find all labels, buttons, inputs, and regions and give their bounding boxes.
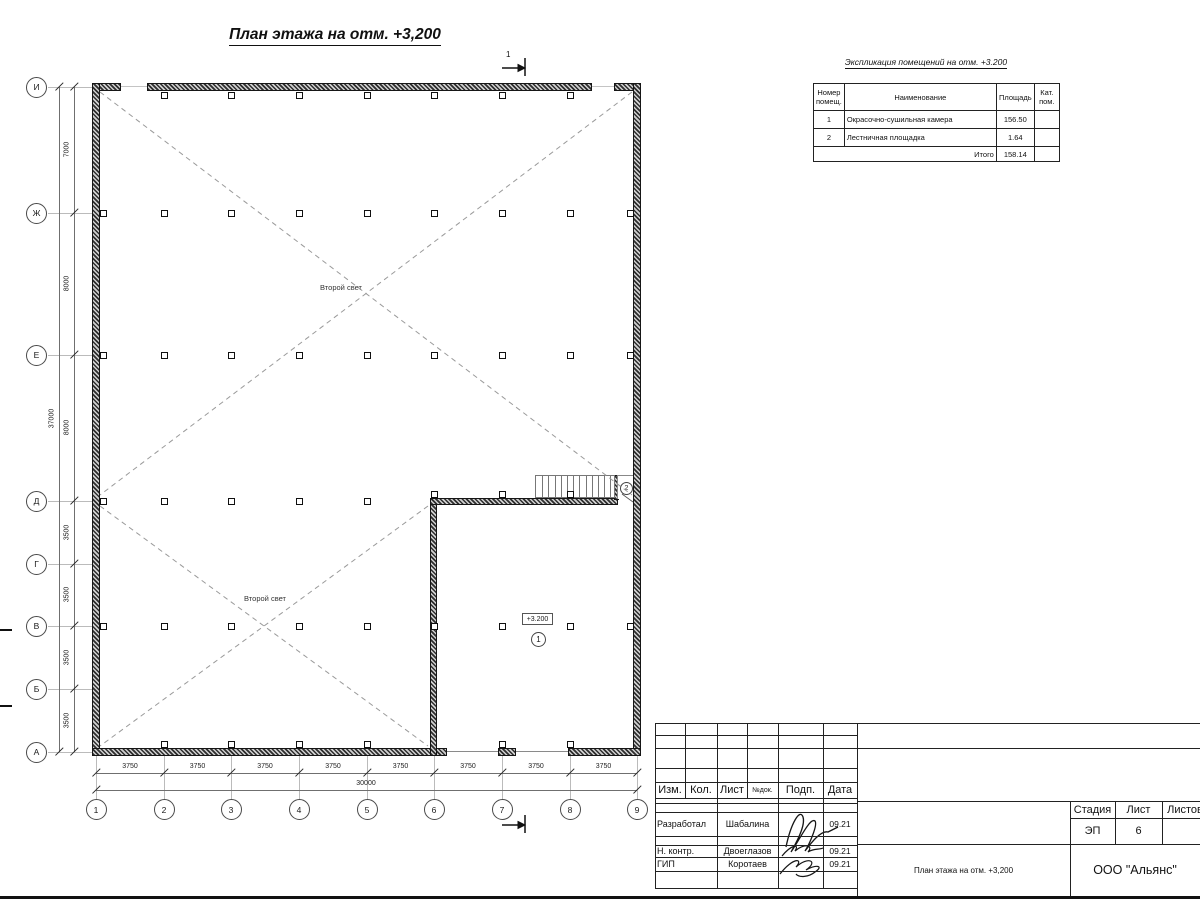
column-marker <box>228 498 235 505</box>
column-marker <box>567 352 574 359</box>
titleblock-line <box>655 836 857 837</box>
tb-col-data: Дата <box>823 782 857 798</box>
tb-stage-value: ЭП <box>1070 818 1115 844</box>
axis-circle: 9 <box>627 799 648 820</box>
axis-label: 3 <box>229 805 234 815</box>
room-number-cell: 2 <box>814 129 845 147</box>
drawing-sheet: План этажа на отм. +3,200 +3.200 1 2 Вто… <box>0 0 1200 900</box>
column-marker <box>228 352 235 359</box>
titleblock-line <box>655 735 857 736</box>
axis-extension-line <box>434 756 435 799</box>
axis-extension-line <box>637 756 638 799</box>
titleblock-line <box>655 888 857 889</box>
dim-label: 7000 <box>64 130 71 170</box>
axis-label: 2 <box>162 805 167 815</box>
tb-stage-label: Стадия <box>1070 801 1115 818</box>
tb-col-ndok: №док. <box>747 782 778 798</box>
tb-col-podp: Подп. <box>778 782 823 798</box>
room-cat-cell <box>1034 111 1059 129</box>
axis-extension-line <box>96 756 97 799</box>
axis-extension-line <box>231 756 232 799</box>
axis-circle: 3 <box>221 799 242 820</box>
column-marker <box>364 352 371 359</box>
titleblock-line <box>857 844 1200 845</box>
column-marker <box>431 491 438 498</box>
titleblock-line <box>655 768 857 769</box>
room-cat-cell <box>1034 129 1059 147</box>
column-marker <box>431 210 438 217</box>
dim-label: 3750 <box>516 763 556 770</box>
axis-extension-line <box>48 752 92 753</box>
dim-label: 3750 <box>584 763 624 770</box>
tb-name: Шабалина <box>717 812 778 836</box>
column-marker <box>296 210 303 217</box>
room-area-cell: 1.64 <box>996 129 1034 147</box>
column-marker <box>364 741 371 748</box>
legend-header-cell: Номер помещ. <box>814 84 845 111</box>
column-marker <box>364 623 371 630</box>
section-arrow-icon <box>502 58 525 76</box>
column-marker <box>228 92 235 99</box>
room-area-cell: 156.50 <box>996 111 1034 129</box>
axis-label: Ж <box>33 208 41 218</box>
column-marker <box>364 92 371 99</box>
dim-label: 3500 <box>64 512 71 552</box>
axis-circle: 8 <box>560 799 581 820</box>
column-marker <box>364 498 371 505</box>
legend-row: 1 Окрасочно-сушильная камера 156.50 <box>814 111 1060 129</box>
dim-label: 3500 <box>64 575 71 615</box>
tb-col-list: Лист <box>717 782 747 798</box>
room2-leader-line <box>622 494 633 502</box>
dim-line-bottom-total <box>96 790 637 791</box>
dim-line-left-total <box>59 87 60 752</box>
column-marker <box>499 741 506 748</box>
signature <box>782 846 823 856</box>
tb-role: Н. контр. <box>657 845 717 857</box>
axis-circle: Ж <box>26 203 47 224</box>
axis-label: 6 <box>432 805 437 815</box>
dim-label-total: 37000 <box>49 399 56 439</box>
titleblock-line <box>655 845 857 846</box>
signature <box>780 861 819 877</box>
tb-sheets-label: Листов <box>1162 801 1200 818</box>
column-marker <box>627 210 634 217</box>
axis-circle: В <box>26 616 47 637</box>
legend-header-cell: Кат. пом. <box>1034 84 1059 111</box>
column-marker <box>296 352 303 359</box>
column-marker <box>228 623 235 630</box>
axis-extension-line <box>164 756 165 799</box>
titleblock-line <box>655 871 857 872</box>
axis-extension-line <box>502 756 503 799</box>
axis-label: Е <box>34 350 40 360</box>
column-marker <box>100 498 107 505</box>
titleblock-line <box>655 748 857 749</box>
dim-label-total: 30000 <box>346 780 386 787</box>
axis-extension-line <box>48 355 92 356</box>
axis-circle: И <box>26 77 47 98</box>
tb-date: 09.21 <box>823 812 857 836</box>
column-marker <box>567 92 574 99</box>
legend-table: Номер помещ. Наименование Площадь Кат. п… <box>813 83 1060 162</box>
column-marker <box>567 491 574 498</box>
column-marker <box>431 352 438 359</box>
axis-circle: Б <box>26 679 47 700</box>
axis-extension-line <box>299 756 300 799</box>
dim-label: 3750 <box>381 763 421 770</box>
axis-extension-line <box>48 213 92 214</box>
column-marker <box>499 491 506 498</box>
axis-circle: Е <box>26 345 47 366</box>
legend-title: Экспликация помещений на отм. +3.200 <box>813 57 1039 67</box>
tb-role: Разработал <box>657 812 717 836</box>
axis-circle: А <box>26 742 47 763</box>
tb-sheet-value: 6 <box>1115 818 1162 844</box>
titleblock-line <box>857 748 1200 749</box>
axis-label: Г <box>34 559 39 569</box>
axis-label: 5 <box>365 805 370 815</box>
axis-label: Б <box>34 684 40 694</box>
titleblock-line <box>857 801 1200 802</box>
legend-row: 2 Лестничная площадка 1.64 <box>814 129 1060 147</box>
tb-col-izm: Изм. <box>655 782 685 798</box>
dim-label: 8000 <box>64 264 71 304</box>
titleblock-line <box>1070 818 1200 819</box>
column-marker <box>296 741 303 748</box>
axis-label: Д <box>34 496 40 506</box>
dim-label: 3750 <box>178 763 218 770</box>
dim-label: 3750 <box>313 763 353 770</box>
legend-total-label: Итого <box>814 147 997 162</box>
axis-circle: 1 <box>86 799 107 820</box>
column-marker <box>627 352 634 359</box>
legend-header-cell: Площадь <box>996 84 1034 111</box>
dim-label: 3750 <box>448 763 488 770</box>
titleblock-line <box>655 812 857 813</box>
axis-circle: 6 <box>424 799 445 820</box>
dim-label: 3500 <box>64 637 71 677</box>
dim-label: 8000 <box>64 408 71 448</box>
column-marker <box>499 92 506 99</box>
legend-header-cell: Наименование <box>844 84 996 111</box>
axis-circle: Д <box>26 491 47 512</box>
dim-label: 3750 <box>245 763 285 770</box>
tb-date: 09.21 <box>823 845 857 857</box>
tb-role: ГИП <box>657 857 717 871</box>
titleblock-line <box>655 782 857 783</box>
titleblock-line <box>857 723 1200 724</box>
axis-circle: 2 <box>154 799 175 820</box>
titleblock-line <box>655 798 857 799</box>
legend-header-row: Номер помещ. Наименование Площадь Кат. п… <box>814 84 1060 111</box>
axis-circle: 7 <box>492 799 513 820</box>
axis-extension-line <box>48 564 92 565</box>
titleblock-line <box>655 857 857 858</box>
axis-circle: 5 <box>357 799 378 820</box>
axis-label: 9 <box>635 805 640 815</box>
tb-sheet-label: Лист <box>1115 801 1162 818</box>
axis-label: 1 <box>94 805 99 815</box>
axis-extension-line <box>48 626 92 627</box>
tb-name: Двоеглазов <box>717 845 778 857</box>
axis-label: 7 <box>500 805 505 815</box>
titleblock-line <box>1070 801 1071 896</box>
room-name-cell: Окрасочно-сушильная камера <box>844 111 996 129</box>
dim-label: 3750 <box>110 763 150 770</box>
column-marker <box>499 623 506 630</box>
column-marker <box>431 623 438 630</box>
tb-date: 09.21 <box>823 857 857 871</box>
column-marker <box>499 210 506 217</box>
column-marker <box>296 92 303 99</box>
axis-label: 4 <box>297 805 302 815</box>
column-marker <box>499 352 506 359</box>
column-marker <box>161 498 168 505</box>
axis-extension-line <box>48 501 92 502</box>
tb-col-kol: Кол. <box>685 782 717 798</box>
tb-doc-name: План этажа на отм. +3,200 <box>857 844 1070 896</box>
axis-extension-line <box>570 756 571 799</box>
legend-total-row: Итого 158.14 <box>814 147 1060 162</box>
titleblock-line <box>1162 801 1163 844</box>
column-marker <box>567 623 574 630</box>
legend-total-cat <box>1034 147 1059 162</box>
column-marker <box>627 623 634 630</box>
legend-total-area: 158.14 <box>996 147 1034 162</box>
titleblock-line <box>655 803 857 804</box>
column-marker <box>296 623 303 630</box>
column-marker <box>228 210 235 217</box>
column-marker <box>161 623 168 630</box>
tb-name: Коротаев <box>717 857 778 871</box>
room-name-cell: Лестничная площадка <box>844 129 996 147</box>
column-marker <box>567 741 574 748</box>
column-marker <box>161 352 168 359</box>
column-marker <box>228 741 235 748</box>
axis-extension-line <box>48 87 92 88</box>
column-marker <box>161 92 168 99</box>
titleblock-line <box>655 723 857 724</box>
tb-sheets-value <box>1162 818 1200 844</box>
axis-label: И <box>33 82 39 92</box>
column-marker <box>431 92 438 99</box>
axis-label: А <box>34 747 40 757</box>
tb-company: ООО "Альянс" <box>1070 844 1200 896</box>
axis-extension-line <box>367 756 368 799</box>
column-marker <box>100 210 107 217</box>
column-marker <box>364 210 371 217</box>
column-marker <box>567 210 574 217</box>
column-marker <box>161 210 168 217</box>
axis-circle: Г <box>26 554 47 575</box>
axis-circle: 4 <box>289 799 310 820</box>
column-marker <box>100 623 107 630</box>
axis-label: В <box>34 621 40 631</box>
axis-label: 8 <box>568 805 573 815</box>
column-marker <box>161 741 168 748</box>
axis-extension-line <box>48 689 92 690</box>
room-number-cell: 1 <box>814 111 845 129</box>
dim-line-left <box>74 87 75 752</box>
column-marker <box>296 498 303 505</box>
titleblock-line <box>1115 801 1116 844</box>
dim-label: 3500 <box>64 700 71 740</box>
column-marker <box>100 352 107 359</box>
